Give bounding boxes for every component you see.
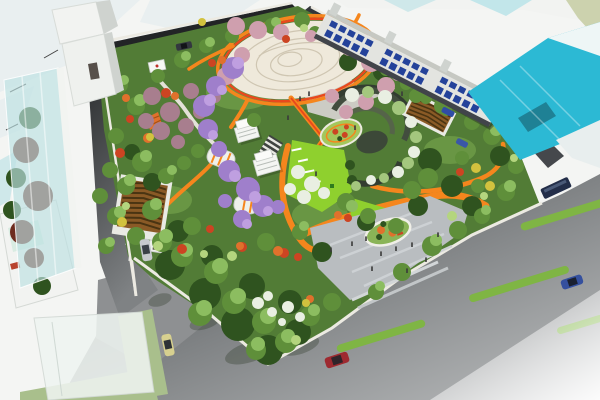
rendered-scene	[0, 0, 600, 400]
park-master-plan-render	[0, 0, 600, 400]
